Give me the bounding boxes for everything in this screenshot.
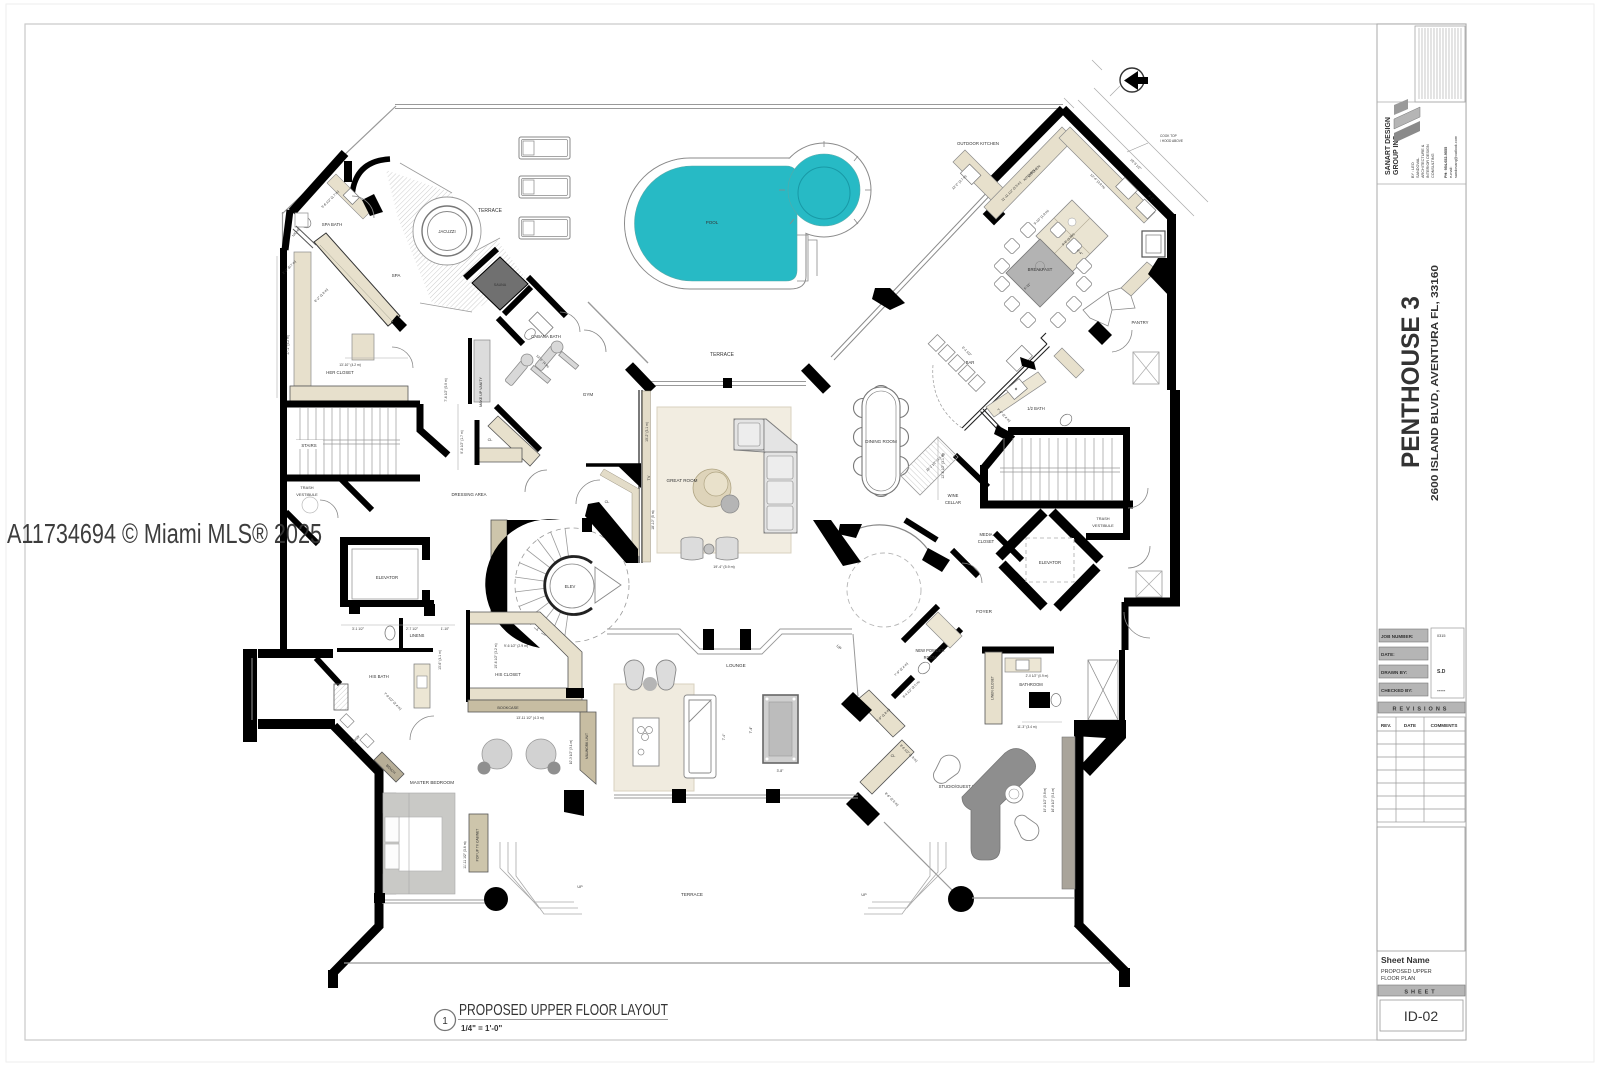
svg-text:PROPOSED UPPER FLOOR LAYOUT: PROPOSED UPPER FLOOR LAYOUT bbox=[459, 1002, 668, 1019]
svg-text:/ HOOD ABOVE: / HOOD ABOVE bbox=[1160, 139, 1183, 143]
svg-text:REVISIONS: REVISIONS bbox=[1393, 707, 1450, 713]
svg-text:TRASH: TRASH bbox=[300, 485, 313, 490]
svg-text:2'-0 1/2" (0.9 m): 2'-0 1/2" (0.9 m) bbox=[1026, 674, 1049, 678]
svg-text:BATHROOM: BATHROOM bbox=[1019, 682, 1043, 687]
svg-text:PROPOSED UPPER: PROPOSED UPPER bbox=[1381, 969, 1432, 975]
svg-text:11'-3" (3.4 m): 11'-3" (3.4 m) bbox=[1017, 725, 1037, 729]
svg-text:BY : LEO: BY : LEO bbox=[1411, 162, 1415, 178]
svg-text:TRASH: TRASH bbox=[1096, 516, 1109, 521]
svg-text:DRESSING AREA: DRESSING AREA bbox=[451, 492, 486, 497]
svg-text:9'-6 1/2" (2.9 m): 9'-6 1/2" (2.9 m) bbox=[504, 644, 528, 648]
svg-text:LINENS: LINENS bbox=[410, 633, 425, 638]
svg-text:POOL: POOL bbox=[706, 220, 719, 225]
svg-text:MEDIA: MEDIA bbox=[980, 532, 993, 537]
svg-text:JACUZZI: JACUZZI bbox=[438, 229, 455, 234]
svg-text:OUTDOOR KITCHEN: OUTDOOR KITCHEN bbox=[957, 141, 999, 146]
svg-text:11'-11 1/2" (3.6 m): 11'-11 1/2" (3.6 m) bbox=[463, 841, 467, 868]
svg-text:TERRACE: TERRACE bbox=[710, 352, 735, 358]
svg-text:UP: UP bbox=[861, 893, 867, 897]
svg-text:-----: ----- bbox=[1437, 688, 1446, 694]
svg-text:MILLWORK UNIT: MILLWORK UNIT bbox=[585, 733, 589, 759]
svg-text:7'-6 1/2" (0.9 m): 7'-6 1/2" (0.9 m) bbox=[444, 378, 448, 401]
svg-text:SANDOVAL: SANDOVAL bbox=[1416, 158, 1420, 178]
svg-text:POP UP TV CABINET: POP UP TV CABINET bbox=[476, 829, 480, 862]
svg-text:HER CLOSET: HER CLOSET bbox=[326, 370, 354, 375]
svg-text:S.D: S.D bbox=[1437, 669, 1446, 675]
svg-text:TERRACE: TERRACE bbox=[478, 208, 503, 214]
svg-text:CL: CL bbox=[605, 500, 610, 504]
svg-text:SAUNA: SAUNA bbox=[494, 283, 507, 287]
svg-text:VESTIBULE: VESTIBULE bbox=[1092, 523, 1114, 528]
svg-text:COOK TOP: COOK TOP bbox=[1160, 134, 1177, 138]
svg-text:2'-7 1/2": 2'-7 1/2" bbox=[406, 627, 419, 631]
svg-text:SPA: SPA bbox=[392, 273, 402, 278]
svg-text:19'-0 1/2" (5.8 m): 19'-0 1/2" (5.8 m) bbox=[1043, 788, 1047, 812]
svg-text:ELEVATOR: ELEVATOR bbox=[376, 575, 398, 580]
svg-text:MASTER BEDROOM: MASTER BEDROOM bbox=[410, 780, 454, 785]
svg-text:GYM: GYM bbox=[583, 392, 594, 397]
svg-text:DINING ROOM: DINING ROOM bbox=[865, 439, 897, 444]
svg-text:10'-3 1/2" (3.1 m): 10'-3 1/2" (3.1 m) bbox=[569, 740, 573, 764]
svg-text:19'-4" (5.9 m): 19'-4" (5.9 m) bbox=[713, 565, 735, 569]
svg-text:1: 1 bbox=[442, 1016, 448, 1027]
svg-text:1'-10": 1'-10" bbox=[441, 627, 450, 631]
svg-text:CHECKED BY:: CHECKED BY: bbox=[1381, 688, 1413, 693]
svg-text:REV.: REV. bbox=[1381, 723, 1391, 728]
svg-text:1/4" = 1'-0": 1/4" = 1'-0" bbox=[461, 1024, 502, 1033]
svg-text:CELLAR: CELLAR bbox=[945, 500, 961, 505]
svg-text:CL: CL bbox=[891, 754, 896, 758]
svg-text:DATE:: DATE: bbox=[1381, 652, 1395, 657]
svg-text:ROOM: ROOM bbox=[924, 655, 937, 660]
svg-text:LOUNGE: LOUNGE bbox=[726, 663, 745, 668]
svg-text:CABANA BATH: CABANA BATH bbox=[531, 334, 561, 339]
svg-text:e-mail:: e-mail: bbox=[1449, 167, 1453, 178]
svg-text:Sheet Name: Sheet Name bbox=[1381, 955, 1430, 965]
svg-text:DATE: DATE bbox=[1404, 723, 1416, 728]
svg-text:SANART DESIGN: SANART DESIGN bbox=[1385, 117, 1392, 175]
svg-text:UP: UP bbox=[577, 885, 583, 889]
svg-text:INTERIOR DESIGN: INTERIOR DESIGN bbox=[1426, 144, 1430, 178]
svg-text:TERRACE: TERRACE bbox=[681, 892, 703, 897]
svg-text:SPA BATH: SPA BATH bbox=[322, 222, 342, 227]
svg-text:CLOSET: CLOSET bbox=[978, 539, 995, 544]
svg-text:7'-4": 7'-4" bbox=[749, 726, 753, 734]
svg-text:BREAKFAST: BREAKFAST bbox=[1028, 267, 1053, 272]
svg-text:1/2 BATH: 1/2 BATH bbox=[1027, 406, 1044, 411]
svg-text:NEW POWDER: NEW POWDER bbox=[915, 648, 944, 653]
svg-text:PANTRY: PANTRY bbox=[1131, 320, 1148, 325]
svg-text:A11734694 © Miami MLS® 2025: A11734694 © Miami MLS® 2025 bbox=[7, 518, 322, 549]
svg-text:10'-2" (3.1 m): 10'-2" (3.1 m) bbox=[645, 422, 649, 442]
svg-text:PH: 954-652-9555: PH: 954-652-9555 bbox=[1444, 147, 1448, 178]
svg-text:CL: CL bbox=[488, 438, 493, 442]
svg-text:COMMENTS: COMMENTS bbox=[1431, 723, 1458, 728]
svg-text:GREAT ROOM: GREAT ROOM bbox=[667, 478, 698, 483]
svg-text:9'-8 1/2" (1.7 m): 9'-8 1/2" (1.7 m) bbox=[460, 430, 464, 453]
svg-text:BOOKCASE: BOOKCASE bbox=[497, 706, 519, 710]
svg-text:STAIRS: STAIRS bbox=[301, 443, 316, 448]
svg-text:TV: TV bbox=[647, 475, 651, 480]
svg-text:HIS CLOSET: HIS CLOSET bbox=[495, 672, 521, 677]
svg-text:3'-8": 3'-8" bbox=[777, 769, 785, 773]
svg-text:sandovarq@outlook.com: sandovarq@outlook.com bbox=[1454, 136, 1458, 178]
svg-text:FLOOR PLAN: FLOOR PLAN bbox=[1381, 976, 1415, 982]
svg-text:ID-02: ID-02 bbox=[1404, 1008, 1438, 1024]
svg-text:7'-4": 7'-4" bbox=[722, 733, 726, 740]
svg-text:FOYER: FOYER bbox=[976, 609, 993, 614]
svg-text:18'-10" (5 m): 18'-10" (5 m) bbox=[651, 510, 655, 529]
svg-text:JOB NUMBER:: JOB NUMBER: bbox=[1381, 634, 1414, 639]
svg-text:ARCHITECTURE &: ARCHITECTURE & bbox=[1421, 144, 1425, 178]
svg-text:13'-10" (4.2 m): 13'-10" (4.2 m) bbox=[339, 363, 361, 367]
svg-text:PENTHOUSE 3: PENTHOUSE 3 bbox=[1397, 296, 1425, 468]
svg-text:ELEVATOR: ELEVATOR bbox=[1039, 560, 1061, 565]
svg-text:ELEV: ELEV bbox=[565, 584, 576, 589]
svg-text:VESTIBULE: VESTIBULE bbox=[296, 492, 318, 497]
svg-text:2600 ISLAND BLVD, AVENTURA FL,: 2600 ISLAND BLVD, AVENTURA FL, 33160 bbox=[1429, 265, 1441, 501]
svg-text:16'-8 1/2" (5.1 m): 16'-8 1/2" (5.1 m) bbox=[1051, 788, 1055, 812]
svg-text:HIS BATH: HIS BATH bbox=[369, 674, 389, 679]
svg-text:12'-6 1/2" (3.1 m): 12'-6 1/2" (3.1 m) bbox=[941, 453, 945, 478]
svg-text:17'-1" (5.2 m): 17'-1" (5.2 m) bbox=[286, 335, 290, 355]
svg-text:BAR: BAR bbox=[966, 360, 975, 365]
svg-text:13'-6" (4.1 m): 13'-6" (4.1 m) bbox=[438, 650, 442, 670]
svg-text:3'-1 1/2": 3'-1 1/2" bbox=[352, 627, 365, 631]
svg-text:CONSULTING: CONSULTING bbox=[1431, 153, 1435, 178]
svg-text:MAKE UP VANITY: MAKE UP VANITY bbox=[479, 376, 483, 406]
svg-text:WINE: WINE bbox=[948, 493, 959, 498]
svg-text:0315: 0315 bbox=[1437, 634, 1445, 638]
svg-text:DRAWN BY:: DRAWN BY: bbox=[1381, 670, 1408, 675]
svg-text:SHEET: SHEET bbox=[1404, 990, 1437, 996]
svg-text:10'-6 1/2" (3.2 m): 10'-6 1/2" (3.2 m) bbox=[494, 643, 498, 668]
svg-text:LINEN CLOSET: LINEN CLOSET bbox=[991, 676, 995, 700]
svg-text:13'-11 1/2" (4.3 m): 13'-11 1/2" (4.3 m) bbox=[516, 716, 544, 720]
